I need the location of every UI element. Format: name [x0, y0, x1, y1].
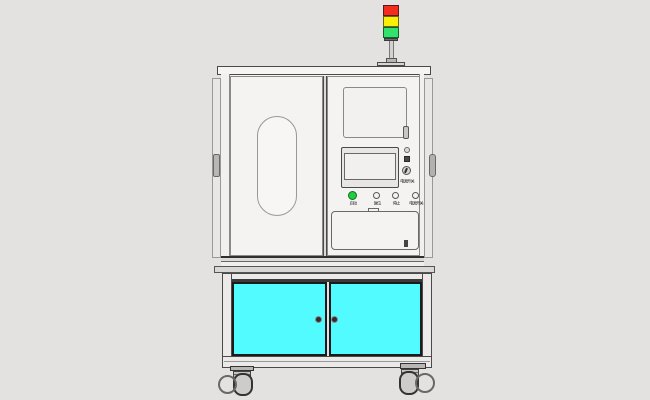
caster-swivel-ring	[415, 373, 435, 393]
reset-button-label: 复位	[369, 202, 384, 206]
caster-right	[396, 361, 438, 397]
viewing-window	[343, 87, 407, 138]
stop-button-label: 停止	[388, 202, 403, 206]
indicator-lamp	[404, 147, 410, 153]
oval-window	[257, 116, 297, 216]
green-light	[383, 27, 399, 38]
reset-button	[373, 192, 380, 199]
door-knob-right	[331, 316, 338, 323]
signal-tower	[377, 5, 407, 66]
lower-door-left	[232, 282, 327, 356]
stand-right-post	[422, 273, 432, 368]
window-latch	[403, 126, 409, 139]
yellow-light	[383, 16, 399, 27]
caster-left	[216, 363, 258, 397]
machine-render: 电源开关 启动 复位 停止 电源开关	[0, 0, 650, 400]
left-door-handle	[311, 154, 321, 181]
access-panel-latch	[404, 240, 408, 247]
red-light	[383, 5, 399, 16]
start-button	[348, 191, 357, 200]
left-frame-post	[221, 74, 230, 258]
usb-port	[404, 156, 410, 162]
key-switch-label: 电源开关	[396, 180, 418, 184]
left-hinge	[213, 154, 220, 177]
door-knob-left	[315, 316, 322, 323]
power-button	[412, 192, 419, 199]
lower-door-right	[329, 282, 422, 356]
caster-swivel-ring	[218, 375, 237, 394]
power-button-label: 电源开关	[404, 202, 428, 206]
start-button-label: 启动	[345, 202, 360, 206]
stop-button	[392, 192, 399, 199]
hmi-screen	[344, 153, 396, 180]
stand-left-post	[222, 273, 232, 368]
right-handle-bump	[429, 154, 436, 177]
table-top	[214, 266, 435, 273]
